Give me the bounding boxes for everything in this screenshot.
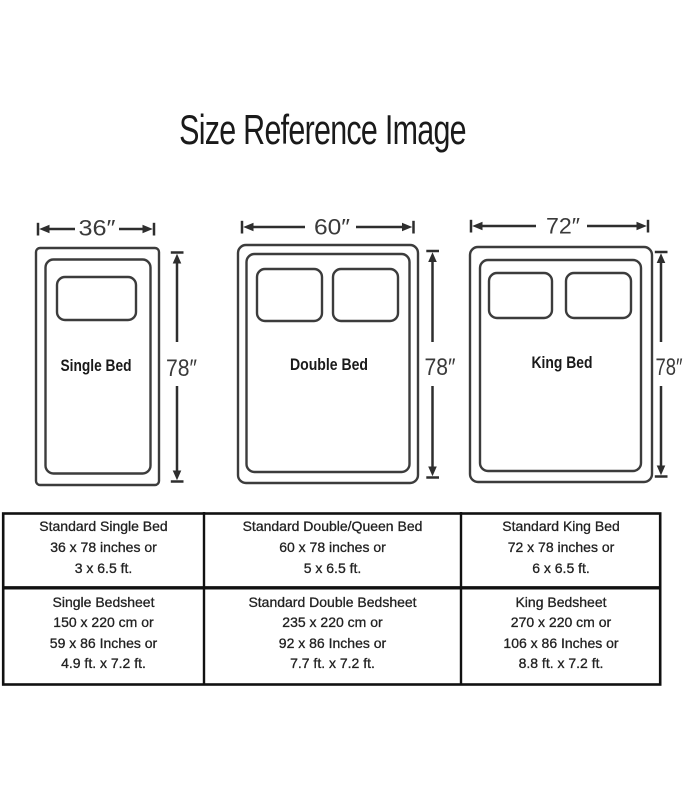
svg-text:King Bed: King Bed <box>532 354 593 372</box>
svg-text:78″: 78″ <box>425 354 456 381</box>
svg-text:Double Bed: Double Bed <box>290 356 368 374</box>
svg-text:36″: 36″ <box>79 216 116 241</box>
svg-text:78″: 78″ <box>656 354 683 381</box>
svg-text:72″: 72″ <box>546 214 580 239</box>
svg-text:60″: 60″ <box>314 215 350 240</box>
svg-text:78″: 78″ <box>166 355 197 382</box>
svg-text:Single Bed: Single Bed <box>61 357 132 375</box>
